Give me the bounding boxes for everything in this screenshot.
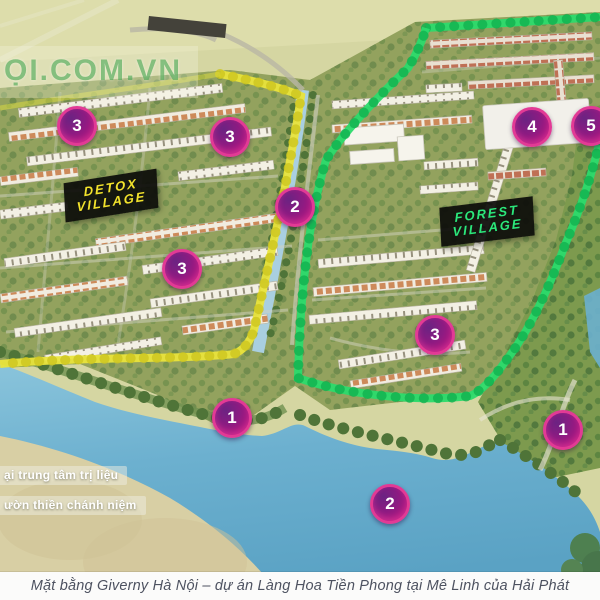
map-marker: 3: [162, 249, 202, 289]
map-marker-number: 3: [72, 116, 81, 136]
map-marker: 3: [210, 117, 250, 157]
map-marker-number: 2: [290, 197, 299, 217]
map-marker-number: 3: [430, 325, 439, 345]
map-marker-number: 3: [177, 259, 186, 279]
map-marker: 3: [415, 315, 455, 355]
map-marker: 1: [543, 410, 583, 450]
map-marker-number: 5: [586, 116, 595, 136]
map-marker: 3: [57, 106, 97, 146]
map-marker-number: 2: [385, 494, 394, 514]
caption-text: Mặt bằng Giverny Hà Nội – dự án Làng Hoa…: [31, 578, 570, 594]
amenity-label-therapy-center: ại trung tâm trị liệu: [0, 466, 127, 485]
map-marker-number: 4: [527, 117, 536, 137]
amenity-label-meditation-garden: ườn thiền chánh niệm: [0, 496, 146, 515]
map-marker-number: 3: [225, 127, 234, 147]
map-marker-number: 1: [227, 408, 236, 428]
map-marker: 2: [370, 484, 410, 524]
map-marker: 2: [275, 187, 315, 227]
map-marker-number: 1: [558, 420, 567, 440]
caption-bar: Mặt bằng Giverny Hà Nội – dự án Làng Hoa…: [0, 572, 600, 600]
masterplan-rendering: ỌI.COM.VN DETOX VILLAGE FOREST VILLAGE ạ…: [0, 0, 600, 600]
map-marker: 1: [212, 398, 252, 438]
map-marker: 4: [512, 107, 552, 147]
